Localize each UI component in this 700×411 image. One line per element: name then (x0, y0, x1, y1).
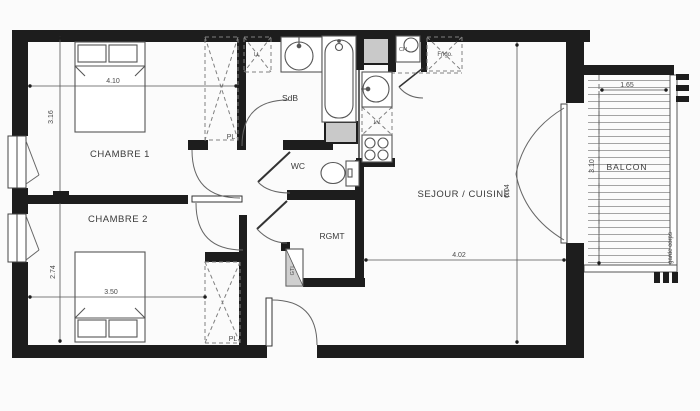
wall-segment (421, 34, 427, 72)
shaft-box (325, 122, 357, 143)
washer-label: LL (254, 52, 260, 58)
dim-tick (53, 191, 69, 196)
gtl-label: GTL (290, 265, 296, 276)
dim-dot (515, 340, 518, 343)
balcony-door-arc-bottom (516, 174, 564, 240)
garde-corps-label: garde corps (668, 232, 674, 264)
burner (378, 138, 388, 148)
dim-dot (28, 84, 31, 87)
dishwasher-label: LV (374, 120, 381, 126)
chambre1-label: CHAMBRE 1 (90, 149, 150, 160)
placard1-label: PL (227, 134, 236, 141)
window-casement-line (26, 175, 39, 184)
toilet-icon (321, 161, 359, 186)
rgmt-door-leaf (257, 201, 287, 229)
sejour-label: SEJOUR / CUISINE (418, 189, 511, 200)
pillow (78, 45, 106, 62)
dim-chambre2-depth: 2.74 (50, 265, 57, 279)
burner (378, 150, 388, 160)
bathtub-tap (338, 40, 341, 43)
dim-balcon-width: 1.65 (620, 82, 634, 89)
entrance-door-leaf (266, 298, 272, 346)
balcony-tick (676, 74, 689, 80)
fixtures (75, 36, 420, 342)
sdb-door-arc (242, 100, 288, 146)
kitchen-sink-tap-head (366, 87, 370, 91)
chambre2-door-arc (196, 203, 243, 250)
entrance-door-arc (272, 300, 317, 345)
ch-closet-door-leaf (399, 68, 423, 87)
washbasin-icon (281, 37, 322, 72)
chambre2-label: CHAMBRE 2 (88, 214, 148, 225)
dim-dot (600, 88, 603, 91)
water-heater-label: CH (399, 47, 407, 53)
wc-label: WC (291, 161, 305, 171)
toilet-bowl (321, 163, 345, 184)
wall-segment (12, 345, 267, 358)
doors (192, 68, 567, 346)
dim-dot (28, 295, 31, 298)
floor-plan-page: CHAMBRE 1 CHAMBRE 2 SdB WC RGMT SEJOUR /… (0, 0, 700, 411)
window-casement-line (26, 250, 39, 260)
dim-balcon-depth: 3.10 (589, 159, 596, 173)
burner (365, 150, 375, 160)
dim-dot (597, 261, 600, 264)
dim-sejour-depth: 6.04 (504, 184, 511, 198)
wall-segment (566, 243, 584, 358)
dim-dot (58, 36, 61, 39)
chambre1-door-arc (192, 150, 240, 198)
pillow (78, 320, 106, 337)
sdb-label: SdB (282, 93, 298, 103)
ch-closet-door-arc (399, 87, 423, 98)
shaft-box (363, 38, 389, 64)
dim-dot (664, 88, 667, 91)
fridge-label: Frigo. (437, 52, 453, 58)
kitchen-sink-icon (361, 72, 392, 107)
pillow (109, 45, 137, 62)
balcony-tick (654, 272, 660, 283)
dim-chambre1-width: 4.10 (106, 78, 120, 85)
burner (365, 138, 375, 148)
wall-segment (287, 190, 363, 200)
wall-segment (188, 140, 208, 150)
pillow (109, 320, 137, 337)
bathtub-basin (325, 40, 353, 118)
dim-dot (58, 339, 61, 342)
rgmt-label: RGMT (319, 231, 344, 241)
dim-dot (562, 258, 565, 261)
chambre-doors-leaf (192, 196, 242, 202)
balcony-tick (672, 272, 678, 283)
floor-plan-drawing: CHAMBRE 1 CHAMBRE 2 SdB WC RGMT SEJOUR /… (0, 0, 700, 411)
balcony-door-leaf (561, 104, 567, 243)
bathtub-icon (322, 36, 356, 122)
dim-dot (234, 84, 237, 87)
wall-segment (28, 195, 188, 204)
balcony-bottom-railing (584, 265, 677, 272)
dim-chambre2-width: 3.50 (104, 289, 118, 296)
wall-segment (566, 30, 584, 103)
balcony-tick (676, 85, 689, 91)
wc-door-arc (258, 182, 290, 193)
bed-chambre1-icon (75, 42, 145, 132)
wall-segment (12, 262, 28, 345)
dim-sejour-width: 4.02 (452, 252, 466, 259)
dim-dot (364, 258, 367, 261)
placard2-label: PL (229, 336, 238, 343)
wc-door-leaf (258, 152, 290, 182)
dim-dot (515, 43, 518, 46)
balcony-top-wall (584, 65, 674, 75)
bathtub-drain (336, 44, 343, 51)
balcony-tick (676, 96, 689, 102)
wall-segment (12, 30, 28, 136)
toilet-flush (348, 169, 352, 177)
rgmt-door-arc (257, 229, 287, 243)
window-casement-line (26, 216, 39, 250)
window-casement-line (26, 141, 39, 175)
balcon-label: BALCON (607, 162, 648, 172)
balcony-door-arc-top (516, 108, 564, 174)
cooktop-icon (362, 135, 392, 162)
wall-segment (12, 188, 28, 214)
wall-segment (317, 345, 584, 358)
dim-chambre1-depth: 3.16 (48, 110, 55, 124)
washbasin-drain (297, 44, 301, 48)
placard-cross-line (205, 262, 240, 343)
balcony (584, 75, 677, 272)
dim-dot (203, 295, 206, 298)
balcony-tick (663, 272, 669, 283)
wall-segment (205, 252, 240, 262)
